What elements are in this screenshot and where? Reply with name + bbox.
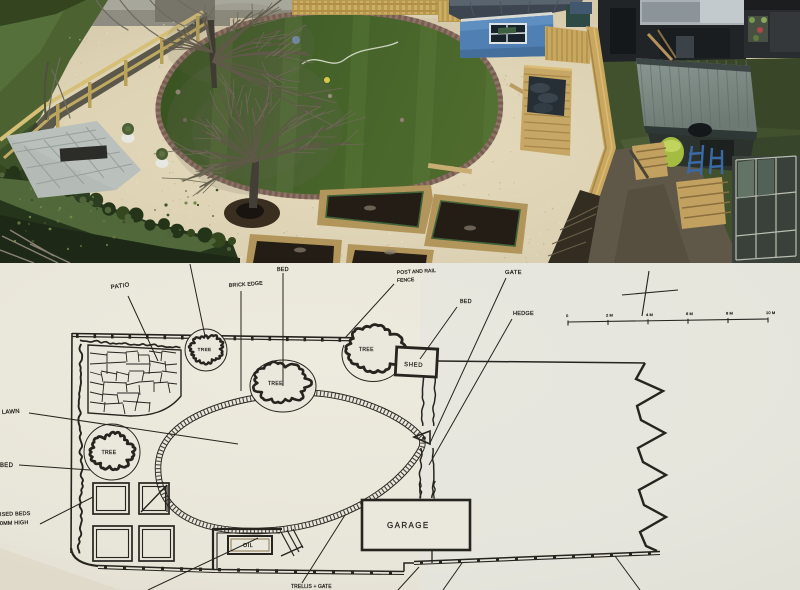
- svg-text:10 M: 10 M: [766, 310, 775, 315]
- svg-text:ISED BEDS: ISED BEDS: [0, 511, 31, 518]
- svg-text:6 M: 6 M: [686, 311, 693, 316]
- svg-text:2 M: 2 M: [606, 312, 613, 317]
- svg-text:BED: BED: [0, 463, 14, 469]
- svg-text:TREE: TREE: [198, 347, 212, 352]
- svg-text:TREE: TREE: [359, 347, 374, 353]
- svg-text:GARAGE: GARAGE: [387, 521, 430, 530]
- svg-text:GATE: GATE: [505, 270, 522, 276]
- svg-text:TREE: TREE: [102, 450, 117, 456]
- svg-text:TREE: TREE: [268, 381, 283, 387]
- svg-text:LAWN: LAWN: [2, 409, 20, 416]
- svg-text:HEDGE: HEDGE: [513, 311, 534, 317]
- svg-text:8 M: 8 M: [726, 311, 733, 316]
- svg-text:4 M: 4 M: [646, 312, 653, 317]
- svg-text:BED: BED: [277, 267, 289, 273]
- svg-text:SHED: SHED: [404, 362, 423, 369]
- svg-text:TRELLIS + GATE: TRELLIS + GATE: [291, 584, 332, 590]
- svg-text:FENCE: FENCE: [397, 277, 415, 284]
- svg-text:0MM HIGH: 0MM HIGH: [0, 520, 29, 527]
- svg-text:BED: BED: [460, 299, 472, 305]
